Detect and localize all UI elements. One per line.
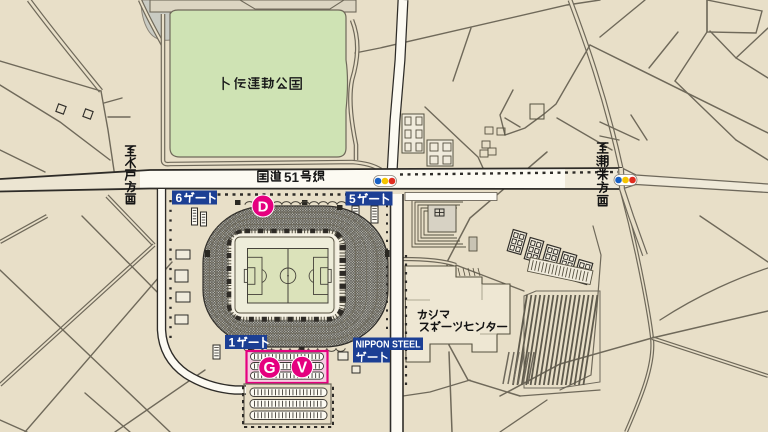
- svg-text:51: 51: [284, 170, 300, 185]
- svg-text:5: 5: [349, 192, 356, 206]
- svg-text:1: 1: [229, 336, 236, 350]
- svg-text:G: G: [263, 360, 275, 377]
- svg-text:NIPPON STEEL: NIPPON STEEL: [356, 339, 421, 351]
- svg-text:D: D: [258, 198, 269, 215]
- svg-text:6: 6: [176, 191, 183, 205]
- svg-text:V: V: [297, 360, 308, 377]
